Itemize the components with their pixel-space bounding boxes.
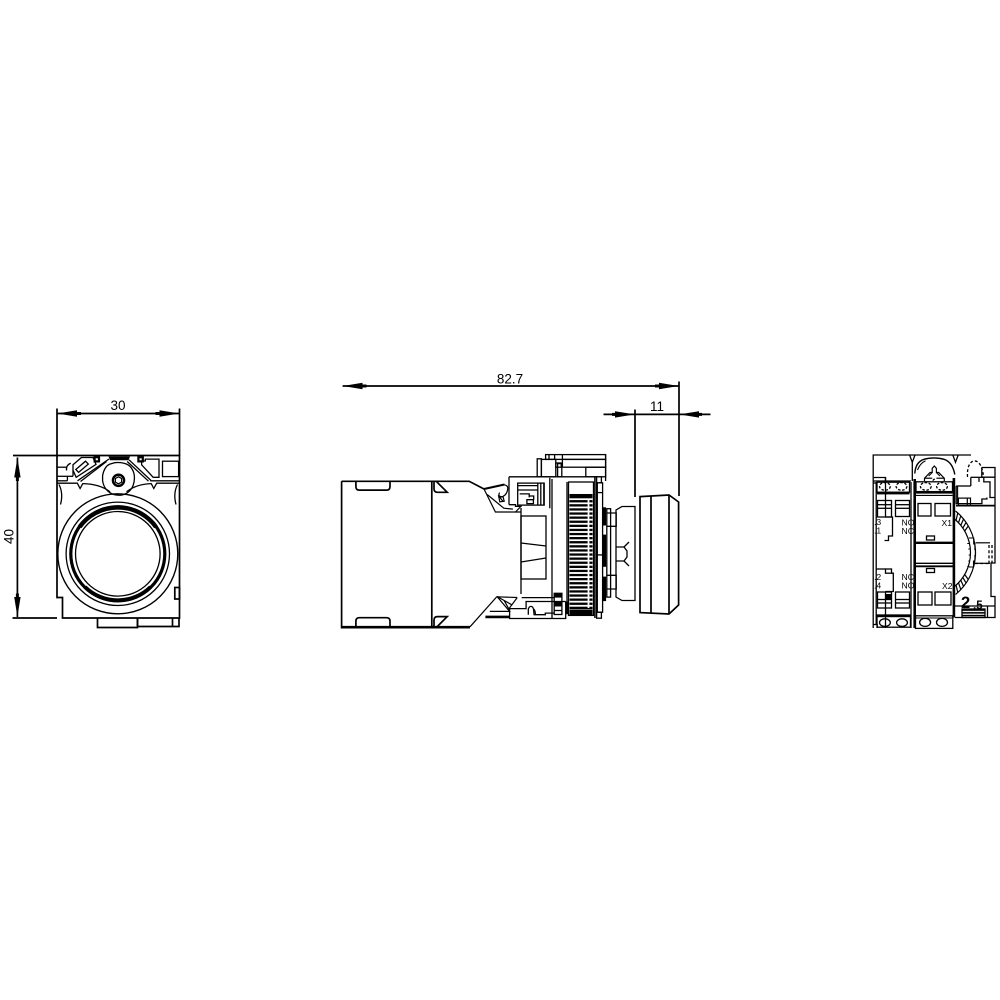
- svg-text:X1: X1: [941, 518, 952, 528]
- svg-text:30: 30: [110, 398, 125, 413]
- svg-text:NC: NC: [902, 526, 914, 536]
- svg-text:11: 11: [650, 399, 664, 414]
- svg-text:X2: X2: [942, 581, 953, 591]
- svg-text:.1: .1: [874, 526, 881, 536]
- svg-text:NO: NO: [902, 581, 915, 591]
- svg-text:.4: .4: [874, 581, 881, 591]
- svg-text:40: 40: [2, 529, 17, 544]
- svg-text:82.7: 82.7: [497, 372, 523, 387]
